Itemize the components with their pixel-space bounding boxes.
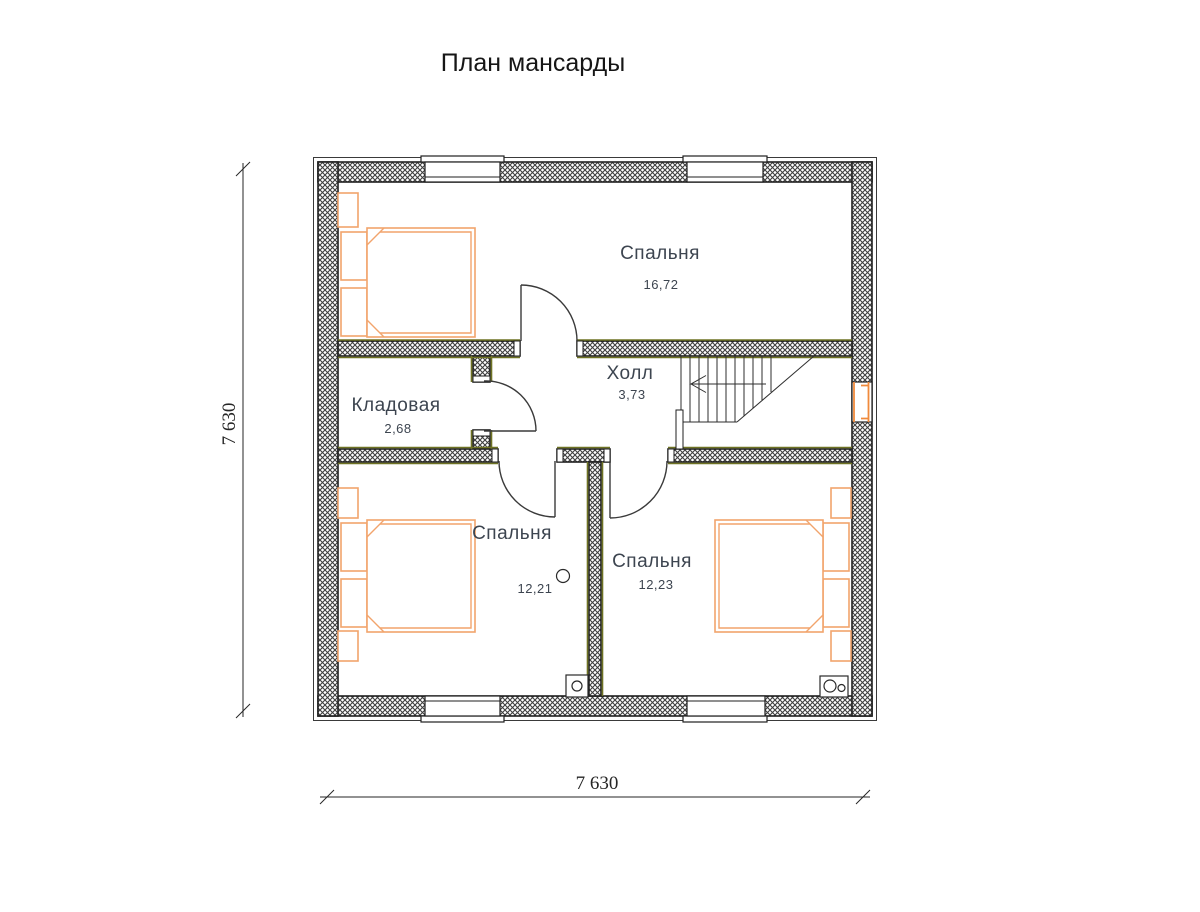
wall-end-cap bbox=[668, 449, 674, 462]
door-bedroom-right bbox=[610, 461, 667, 518]
page-title: План мансарды bbox=[441, 49, 625, 77]
wall-segment bbox=[589, 462, 601, 696]
wall-segment bbox=[557, 449, 610, 462]
door-bedroom-top bbox=[521, 285, 577, 341]
room-label-bedroom-top: Спальня bbox=[620, 243, 700, 264]
interior-walls bbox=[338, 340, 852, 696]
room-area-storage: 2,68 bbox=[384, 421, 411, 436]
stair-break-line bbox=[737, 356, 814, 422]
window-sill bbox=[683, 716, 767, 722]
bed-bottom-left bbox=[338, 488, 475, 661]
wall-segment bbox=[668, 449, 852, 462]
stair-direction-arrow bbox=[691, 376, 766, 393]
room-area-hall: 3,73 bbox=[618, 387, 645, 402]
room-label-hall: Холл bbox=[607, 363, 654, 384]
door-storage bbox=[484, 381, 536, 431]
wall-exterior-right bbox=[852, 162, 872, 716]
bed-top-left bbox=[338, 193, 475, 337]
pillow bbox=[341, 288, 367, 336]
bed-mattress bbox=[367, 520, 475, 632]
window-sill bbox=[421, 156, 504, 162]
wall-segment bbox=[338, 449, 498, 462]
room-area-bedroom-top: 16,72 bbox=[643, 277, 678, 292]
nightstand bbox=[338, 193, 358, 227]
window bbox=[425, 696, 500, 716]
stair-treads bbox=[690, 356, 735, 422]
wall-exterior-bottom bbox=[318, 696, 872, 716]
door-bedroom-left bbox=[499, 461, 555, 517]
window bbox=[425, 162, 500, 182]
nightstand bbox=[831, 631, 851, 661]
dimension-left: 7 630 bbox=[219, 162, 250, 718]
door-arc bbox=[610, 461, 667, 518]
pillow bbox=[341, 579, 367, 627]
stair-rail bbox=[676, 410, 683, 449]
window bbox=[687, 696, 765, 716]
wall-exterior-left bbox=[318, 162, 338, 716]
window bbox=[687, 162, 763, 182]
room-area-bedroom-right: 12,23 bbox=[638, 577, 673, 592]
wall-end-cap bbox=[557, 449, 563, 462]
pillow bbox=[341, 232, 367, 280]
bed-mattress bbox=[715, 520, 823, 632]
bed-mattress bbox=[367, 228, 475, 337]
floor-plan-drawing: План мансарды bbox=[0, 0, 1200, 912]
dimension-bottom: 7 630 bbox=[320, 773, 870, 804]
window-sill bbox=[421, 716, 504, 722]
door-arc bbox=[521, 285, 577, 341]
pillow bbox=[823, 579, 849, 627]
staircase bbox=[676, 356, 814, 449]
wall-end-cap bbox=[577, 341, 583, 356]
bed-bottom-right bbox=[715, 488, 851, 661]
wall-segment bbox=[338, 341, 520, 356]
dimension-text-height: 7 630 bbox=[219, 403, 240, 446]
room-label-bedroom-right: Спальня bbox=[612, 551, 692, 572]
floor-plan-page: План мансарды bbox=[0, 0, 1200, 912]
nightstand bbox=[831, 488, 851, 518]
wall-end-cap bbox=[514, 341, 520, 356]
dimension-text-width: 7 630 bbox=[576, 773, 619, 794]
vent-duct bbox=[572, 681, 582, 691]
wall-end-cap bbox=[604, 449, 610, 462]
pillow bbox=[823, 523, 849, 571]
room-label-bedroom-left: Спальня bbox=[472, 523, 552, 544]
door-arc bbox=[484, 381, 536, 431]
nightstand bbox=[338, 488, 358, 518]
vent-duct bbox=[824, 680, 836, 692]
pillow bbox=[341, 523, 367, 571]
nightstand bbox=[338, 631, 358, 661]
wall-exterior-top bbox=[318, 162, 872, 182]
chimney-pipe bbox=[557, 570, 570, 583]
vent-duct bbox=[838, 685, 845, 692]
room-area-bedroom-left: 12,21 bbox=[517, 581, 552, 596]
wall-segment bbox=[577, 341, 852, 356]
stair-treads-cut bbox=[744, 356, 771, 416]
window-sill bbox=[683, 156, 767, 162]
room-label-storage: Кладовая bbox=[351, 395, 440, 416]
door-arc bbox=[499, 461, 555, 517]
wall-end-cap bbox=[492, 449, 498, 462]
